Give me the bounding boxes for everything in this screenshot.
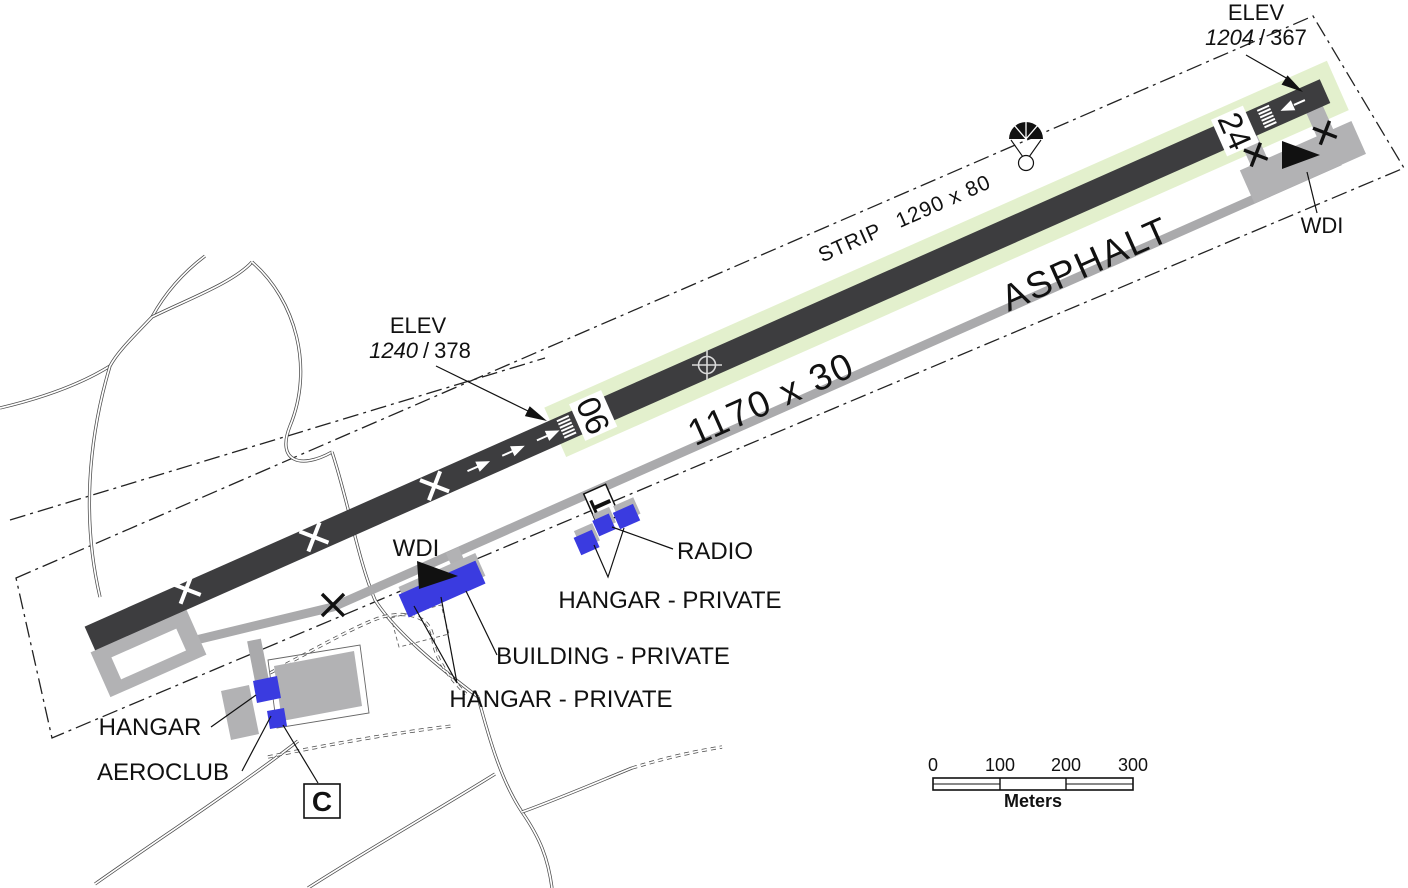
aerodrome-chart: 06 24 T STRIP1290 x 80 1170 x 30 ASPHALT	[0, 0, 1408, 888]
hangar-private-ne-leader	[594, 528, 624, 577]
wdi-mid-label: WDI	[393, 535, 440, 562]
circuit-marker-c: C	[312, 786, 332, 817]
scale-tick-200: 200	[1051, 755, 1081, 775]
scale-bar: 0 100 200 300 Meters	[928, 755, 1148, 811]
hangar-private-ne-label: HANGAR - PRIVATE	[558, 587, 781, 614]
building-private-leader	[466, 591, 497, 655]
elev-ne-title: ELEV	[1228, 0, 1285, 25]
scale-tick-100: 100	[985, 755, 1015, 775]
scale-tick-0: 0	[928, 755, 938, 775]
aeroclub-taxiway-stub	[254, 640, 262, 681]
scale-unit: Meters	[1004, 791, 1062, 811]
chart-canvas: 06 24 T STRIP1290 x 80 1170 x 30 ASPHALT	[0, 0, 1408, 888]
elev-sw-annotation: ELEV 1240/378	[369, 313, 547, 421]
elev-sw-title: ELEV	[390, 313, 447, 338]
aeroclub-complex	[221, 651, 362, 740]
hangar-private-sw-label: HANGAR - PRIVATE	[449, 686, 672, 713]
aeroclub-main-building	[274, 651, 362, 721]
elev-ne-value: 1204/367	[1205, 25, 1307, 50]
elev-ne-leader	[1246, 55, 1288, 79]
elev-sw-value: 1240/378	[369, 338, 471, 363]
building-private-label: BUILDING - PRIVATE	[496, 643, 730, 670]
wdi-ne-label: WDI	[1301, 213, 1344, 238]
radio-label: RADIO	[677, 538, 753, 565]
hangar-label: HANGAR	[99, 714, 202, 741]
aeroclub-label: AEROCLUB	[97, 759, 229, 786]
aeroclub-apron	[221, 685, 259, 740]
elev-sw-arrowhead	[525, 406, 547, 421]
road-network	[0, 256, 722, 888]
elev-sw-leader	[436, 366, 528, 411]
scale-tick-300: 300	[1118, 755, 1148, 775]
